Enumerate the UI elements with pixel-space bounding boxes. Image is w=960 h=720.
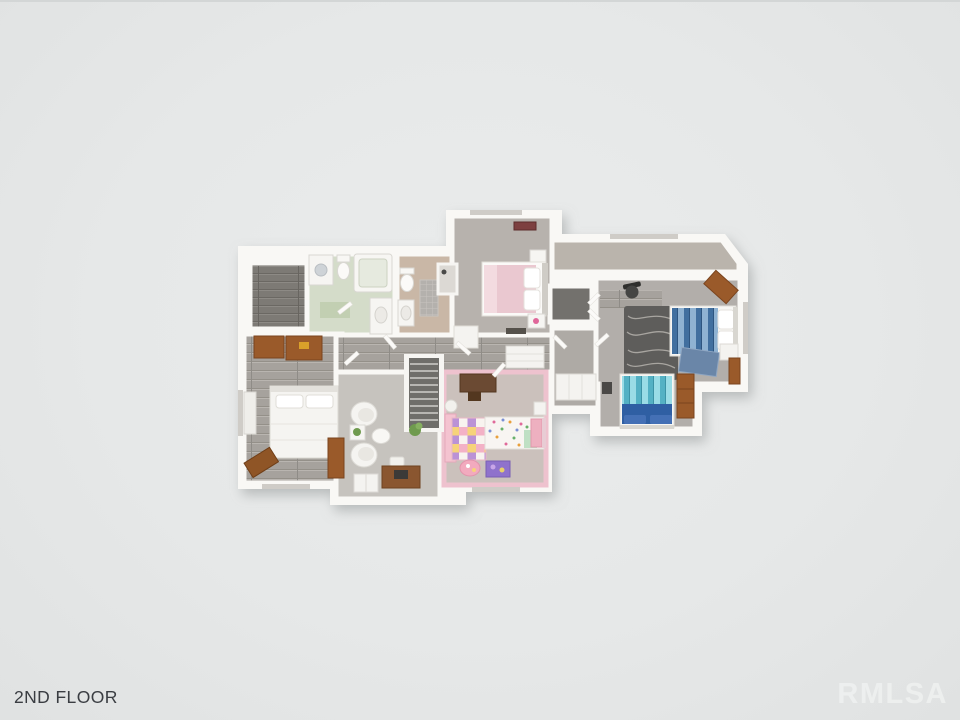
play-mat — [452, 418, 486, 460]
floorplan-render — [0, 2, 960, 720]
pink-double-bed — [482, 262, 548, 316]
white-bench — [244, 392, 256, 434]
tall-dresser — [677, 374, 694, 418]
rmlsa-watermark: RMLSA — [837, 678, 948, 711]
bathtub — [354, 254, 392, 292]
writing-desk — [382, 466, 420, 488]
staircase — [404, 354, 444, 432]
toilet — [337, 255, 350, 280]
vanity-sink — [398, 300, 414, 326]
purple-toy-box — [486, 461, 510, 477]
wall-art — [514, 222, 536, 230]
floorplan-image: 2ND FLOOR RMLSA — [0, 0, 960, 720]
wood-chest — [328, 438, 344, 478]
armchair — [351, 443, 377, 467]
plant-table — [350, 425, 365, 440]
armchair — [351, 402, 377, 426]
white-dresser — [528, 314, 545, 328]
dresser-tray — [299, 342, 309, 349]
round-table — [372, 429, 390, 444]
walkin-closet-floor — [250, 263, 307, 329]
toilet — [400, 268, 414, 292]
bench — [506, 328, 526, 334]
laundry-basket — [445, 400, 457, 412]
closet-shelves — [556, 374, 596, 400]
bonus-closet-floor — [550, 286, 592, 322]
kids-pink-table — [460, 460, 480, 476]
linen-closet — [506, 346, 544, 368]
landing-floor — [552, 240, 739, 272]
wall-fixture — [602, 382, 612, 394]
tile-rug — [420, 280, 438, 316]
laptop — [394, 470, 408, 479]
vanity-sink — [370, 298, 392, 334]
aqua-striped-bed — [620, 374, 674, 429]
cabinet — [354, 474, 378, 492]
washer — [309, 255, 333, 285]
white-shelf — [534, 402, 546, 415]
desk-chair — [390, 457, 404, 466]
kids-bed — [485, 417, 546, 449]
floor-label: 2ND FLOOR — [14, 687, 118, 708]
dresser — [254, 336, 284, 358]
side-table — [729, 358, 740, 384]
nightstand — [530, 250, 546, 263]
foot-blanket — [679, 347, 720, 376]
shower — [438, 264, 457, 294]
